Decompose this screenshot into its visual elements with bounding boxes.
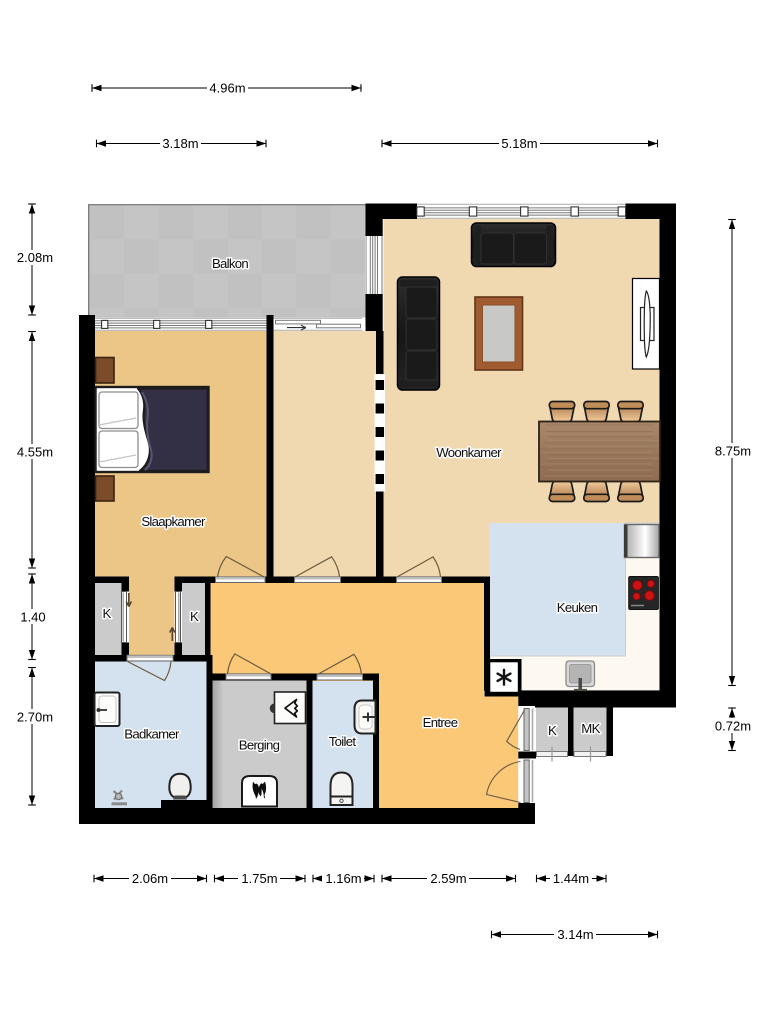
svg-text:K: K [190, 609, 199, 624]
svg-text:Slaapkamer: Slaapkamer [141, 514, 206, 529]
svg-text:K: K [548, 723, 557, 738]
svg-text:1.40: 1.40 [20, 610, 45, 625]
svg-text:Berging: Berging [239, 738, 280, 753]
svg-text:MK: MK [581, 721, 600, 736]
svg-text:Balkon: Balkon [212, 256, 248, 271]
svg-text:Badkamer: Badkamer [124, 727, 180, 742]
svg-text:Keuken: Keuken [557, 600, 598, 615]
svg-text:Entree: Entree [423, 715, 458, 730]
svg-text:1.44m: 1.44m [553, 871, 589, 886]
svg-text:8.75m: 8.75m [715, 444, 751, 459]
svg-text:1.75m: 1.75m [241, 871, 277, 886]
svg-text:2.06m: 2.06m [132, 871, 168, 886]
svg-text:Woonkamer: Woonkamer [436, 445, 502, 460]
svg-text:2.08m: 2.08m [17, 250, 53, 265]
svg-text:0.72m: 0.72m [715, 719, 751, 734]
svg-text:2.59m: 2.59m [430, 871, 466, 886]
svg-text:3.14m: 3.14m [557, 927, 593, 942]
svg-text:3.18m: 3.18m [162, 136, 198, 151]
svg-text:2.70m: 2.70m [17, 710, 53, 725]
svg-text:1.16m: 1.16m [325, 871, 361, 886]
svg-text:Toilet: Toilet [329, 734, 357, 749]
svg-text:4.96m: 4.96m [209, 81, 245, 96]
svg-text:K: K [102, 606, 111, 621]
svg-text:4.55m: 4.55m [17, 445, 53, 460]
svg-text:5.18m: 5.18m [501, 136, 537, 151]
